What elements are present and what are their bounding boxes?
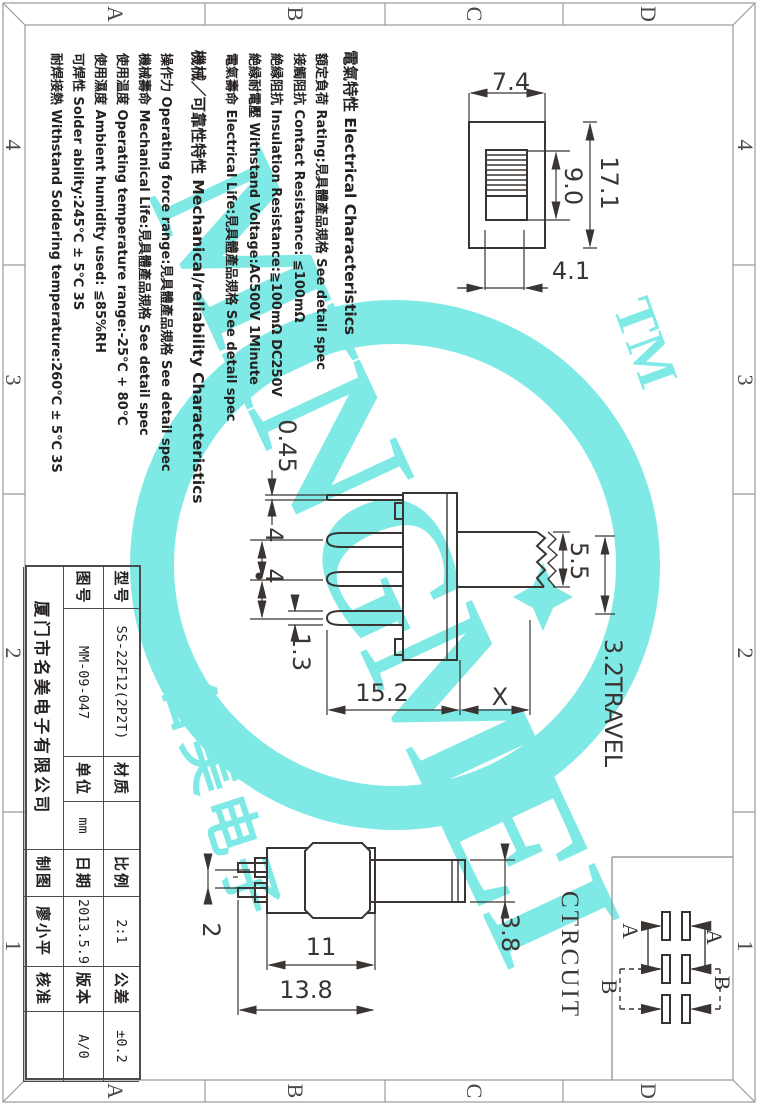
zone-right-3: 3 (734, 375, 756, 386)
date-label: 日期 (63, 850, 103, 897)
circuit-title: CTRCUIT (555, 891, 583, 1019)
version-label: 版本 (63, 967, 103, 1012)
circuit-label-a2: A (703, 929, 725, 945)
zone-right-2: 2 (734, 648, 756, 659)
dim-travel: 3.2TRAVEL (601, 639, 625, 767)
dim-top-length: 17.1 (597, 156, 621, 209)
dim-body-height: 15.2 (355, 681, 408, 705)
dim-pitch-2: 4 (262, 568, 286, 583)
dim-plate: 0.45 (275, 419, 299, 472)
drawn-by-value: 廖小平 (23, 897, 63, 967)
zone-right-1: 1 (734, 941, 756, 952)
zone-top-b: B (284, 7, 306, 22)
dim-pin-pitch: 2 (199, 922, 223, 937)
zone-top-a: A (104, 6, 126, 22)
circuit-label-b1: B (598, 980, 620, 995)
zone-left-2: 2 (2, 648, 24, 659)
zone-left-3: 3 (2, 375, 24, 386)
dim-knob-width: 5.5 (567, 542, 591, 580)
circuit-label-b2: B (711, 976, 733, 991)
company-name: 厦门市名美电子有限公司 (23, 567, 63, 850)
approved-value (23, 1012, 63, 1082)
dim-top-slot: 9.0 (561, 167, 585, 205)
dim-knob-ext-x: X (492, 685, 508, 709)
rotated-landscape-sheet: MINGMEI TM 名美电子 (25, 25, 733, 1080)
dim-side-body: 11 (306, 935, 337, 959)
top-view (469, 122, 545, 248)
dim-pin-width: 1.3 (289, 633, 313, 671)
scale-label: 比例 (103, 850, 139, 897)
zone-bottom-b: B (284, 1084, 306, 1099)
tolerance-label: 公差 (103, 967, 139, 1012)
tolerance-value: ±0.2 (103, 1012, 139, 1082)
zone-bottom-a: A (104, 1083, 126, 1099)
title-block: 型号 SS-22F12(2P2T) 材质 比例 2:1 公差 ±0.2 图号 M… (25, 565, 141, 1080)
front-view-dims (250, 470, 615, 715)
zone-bottom-d: D (637, 1083, 659, 1099)
zone-top-d: D (637, 6, 659, 22)
zone-bottom-c: C (463, 1084, 485, 1099)
drawing-sheet: A B C D A B C D 4 3 2 1 4 3 2 1 MINGMEI … (0, 0, 758, 1105)
dim-top-width: 7.4 (492, 70, 530, 94)
circuit-diagram (612, 857, 733, 1080)
zone-left-1: 1 (2, 941, 24, 952)
approved-label: 核准 (23, 967, 63, 1012)
dim-pitch-1: 4 (262, 527, 286, 542)
drawing-no-label: 图号 (63, 567, 103, 609)
unit-label: 单位 (63, 757, 103, 802)
zone-right-4: 4 (734, 140, 756, 151)
circuit-label-a1: A (619, 923, 641, 939)
zone-top-c: C (463, 7, 485, 22)
zone-left-4: 4 (2, 140, 24, 151)
material-value (103, 802, 139, 850)
dim-side-total: 13.8 (279, 978, 332, 1002)
unit-value: mm (63, 802, 103, 850)
model-label: 型号 (103, 567, 139, 609)
dim-top-knob: 4.1 (552, 259, 590, 283)
date-value: 2013.5.9 (63, 897, 103, 967)
front-view (327, 493, 557, 660)
version-value: A/0 (63, 1012, 103, 1082)
drawing-no-value: MM-09-047 (63, 609, 103, 757)
material-label: 材质 (103, 757, 139, 802)
dim-side-knob: 3.8 (498, 914, 522, 952)
side-view (238, 843, 465, 918)
model-value: SS-22F12(2P2T) (103, 609, 139, 757)
scale-value: 2:1 (103, 897, 139, 967)
drawn-label: 制图 (23, 850, 63, 897)
